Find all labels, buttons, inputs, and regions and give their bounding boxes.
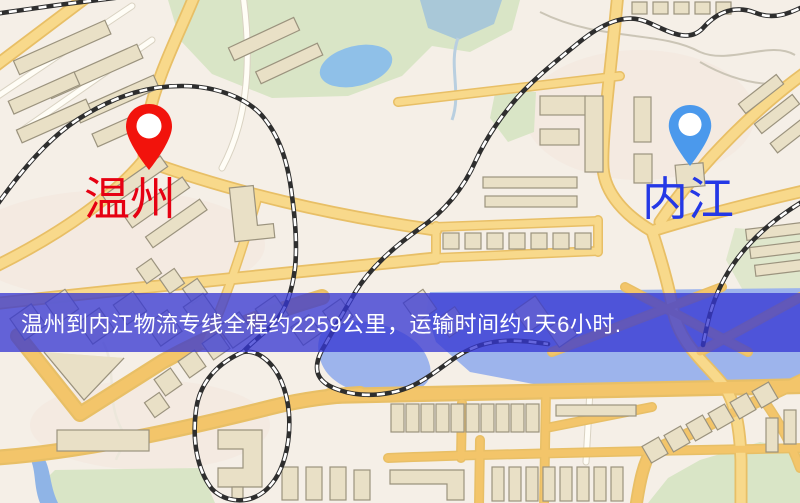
destination-pin[interactable] bbox=[666, 103, 714, 168]
origin-pin[interactable] bbox=[123, 102, 175, 172]
map-canvas[interactable]: 温州到内江物流专线全程约2259公里，运输时间约1天6小时. 温州 内江 bbox=[0, 0, 800, 503]
origin-label: 温州 bbox=[84, 177, 176, 223]
destination-label: 内江 bbox=[642, 177, 734, 223]
origin-pin-icon bbox=[123, 102, 175, 172]
route-banner-text: 温州到内江物流专线全程约2259公里，运输时间约1天6小时. bbox=[0, 307, 622, 339]
street-map bbox=[0, 0, 800, 503]
route-banner: 温州到内江物流专线全程约2259公里，运输时间约1天6小时. bbox=[0, 293, 800, 352]
destination-pin-icon bbox=[666, 103, 714, 168]
